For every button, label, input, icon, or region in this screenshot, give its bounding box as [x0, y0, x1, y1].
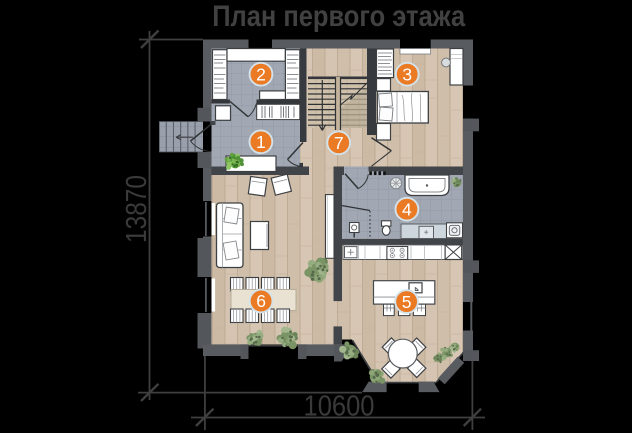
svg-text:10600: 10600 [304, 391, 375, 423]
svg-text:6: 6 [256, 291, 266, 311]
svg-text:4: 4 [402, 199, 412, 219]
svg-text:7: 7 [334, 133, 344, 153]
svg-text:13870: 13870 [121, 175, 153, 243]
svg-text:2: 2 [256, 64, 266, 84]
svg-text:3: 3 [402, 64, 412, 84]
svg-text:5: 5 [402, 292, 412, 312]
svg-text:План первого этажа: План первого этажа [212, 0, 465, 33]
svg-text:1: 1 [256, 132, 266, 152]
